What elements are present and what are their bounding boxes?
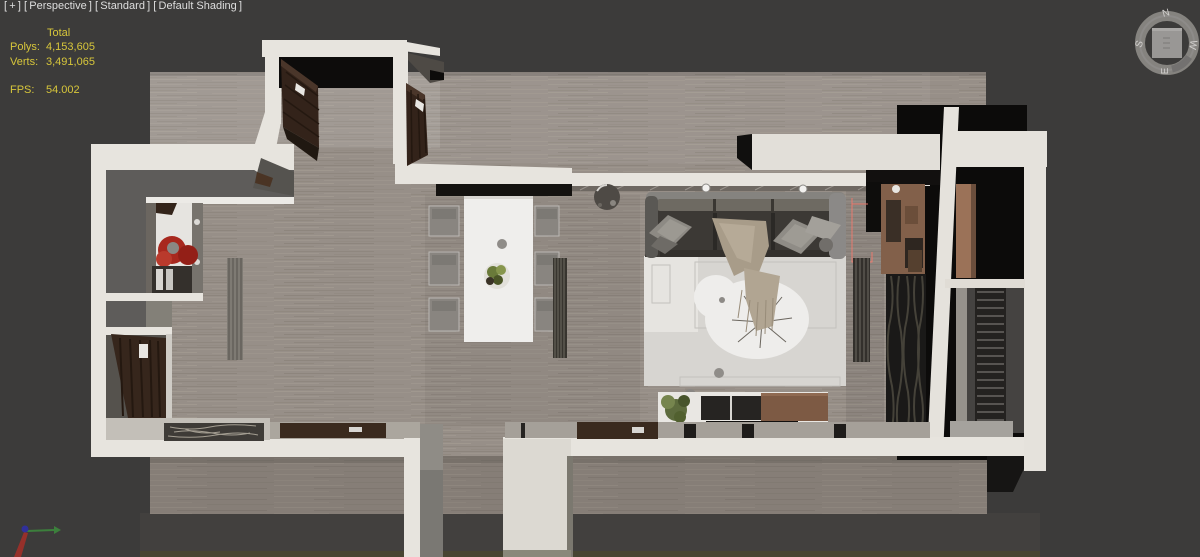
svg-text:E: E: [1160, 67, 1171, 74]
